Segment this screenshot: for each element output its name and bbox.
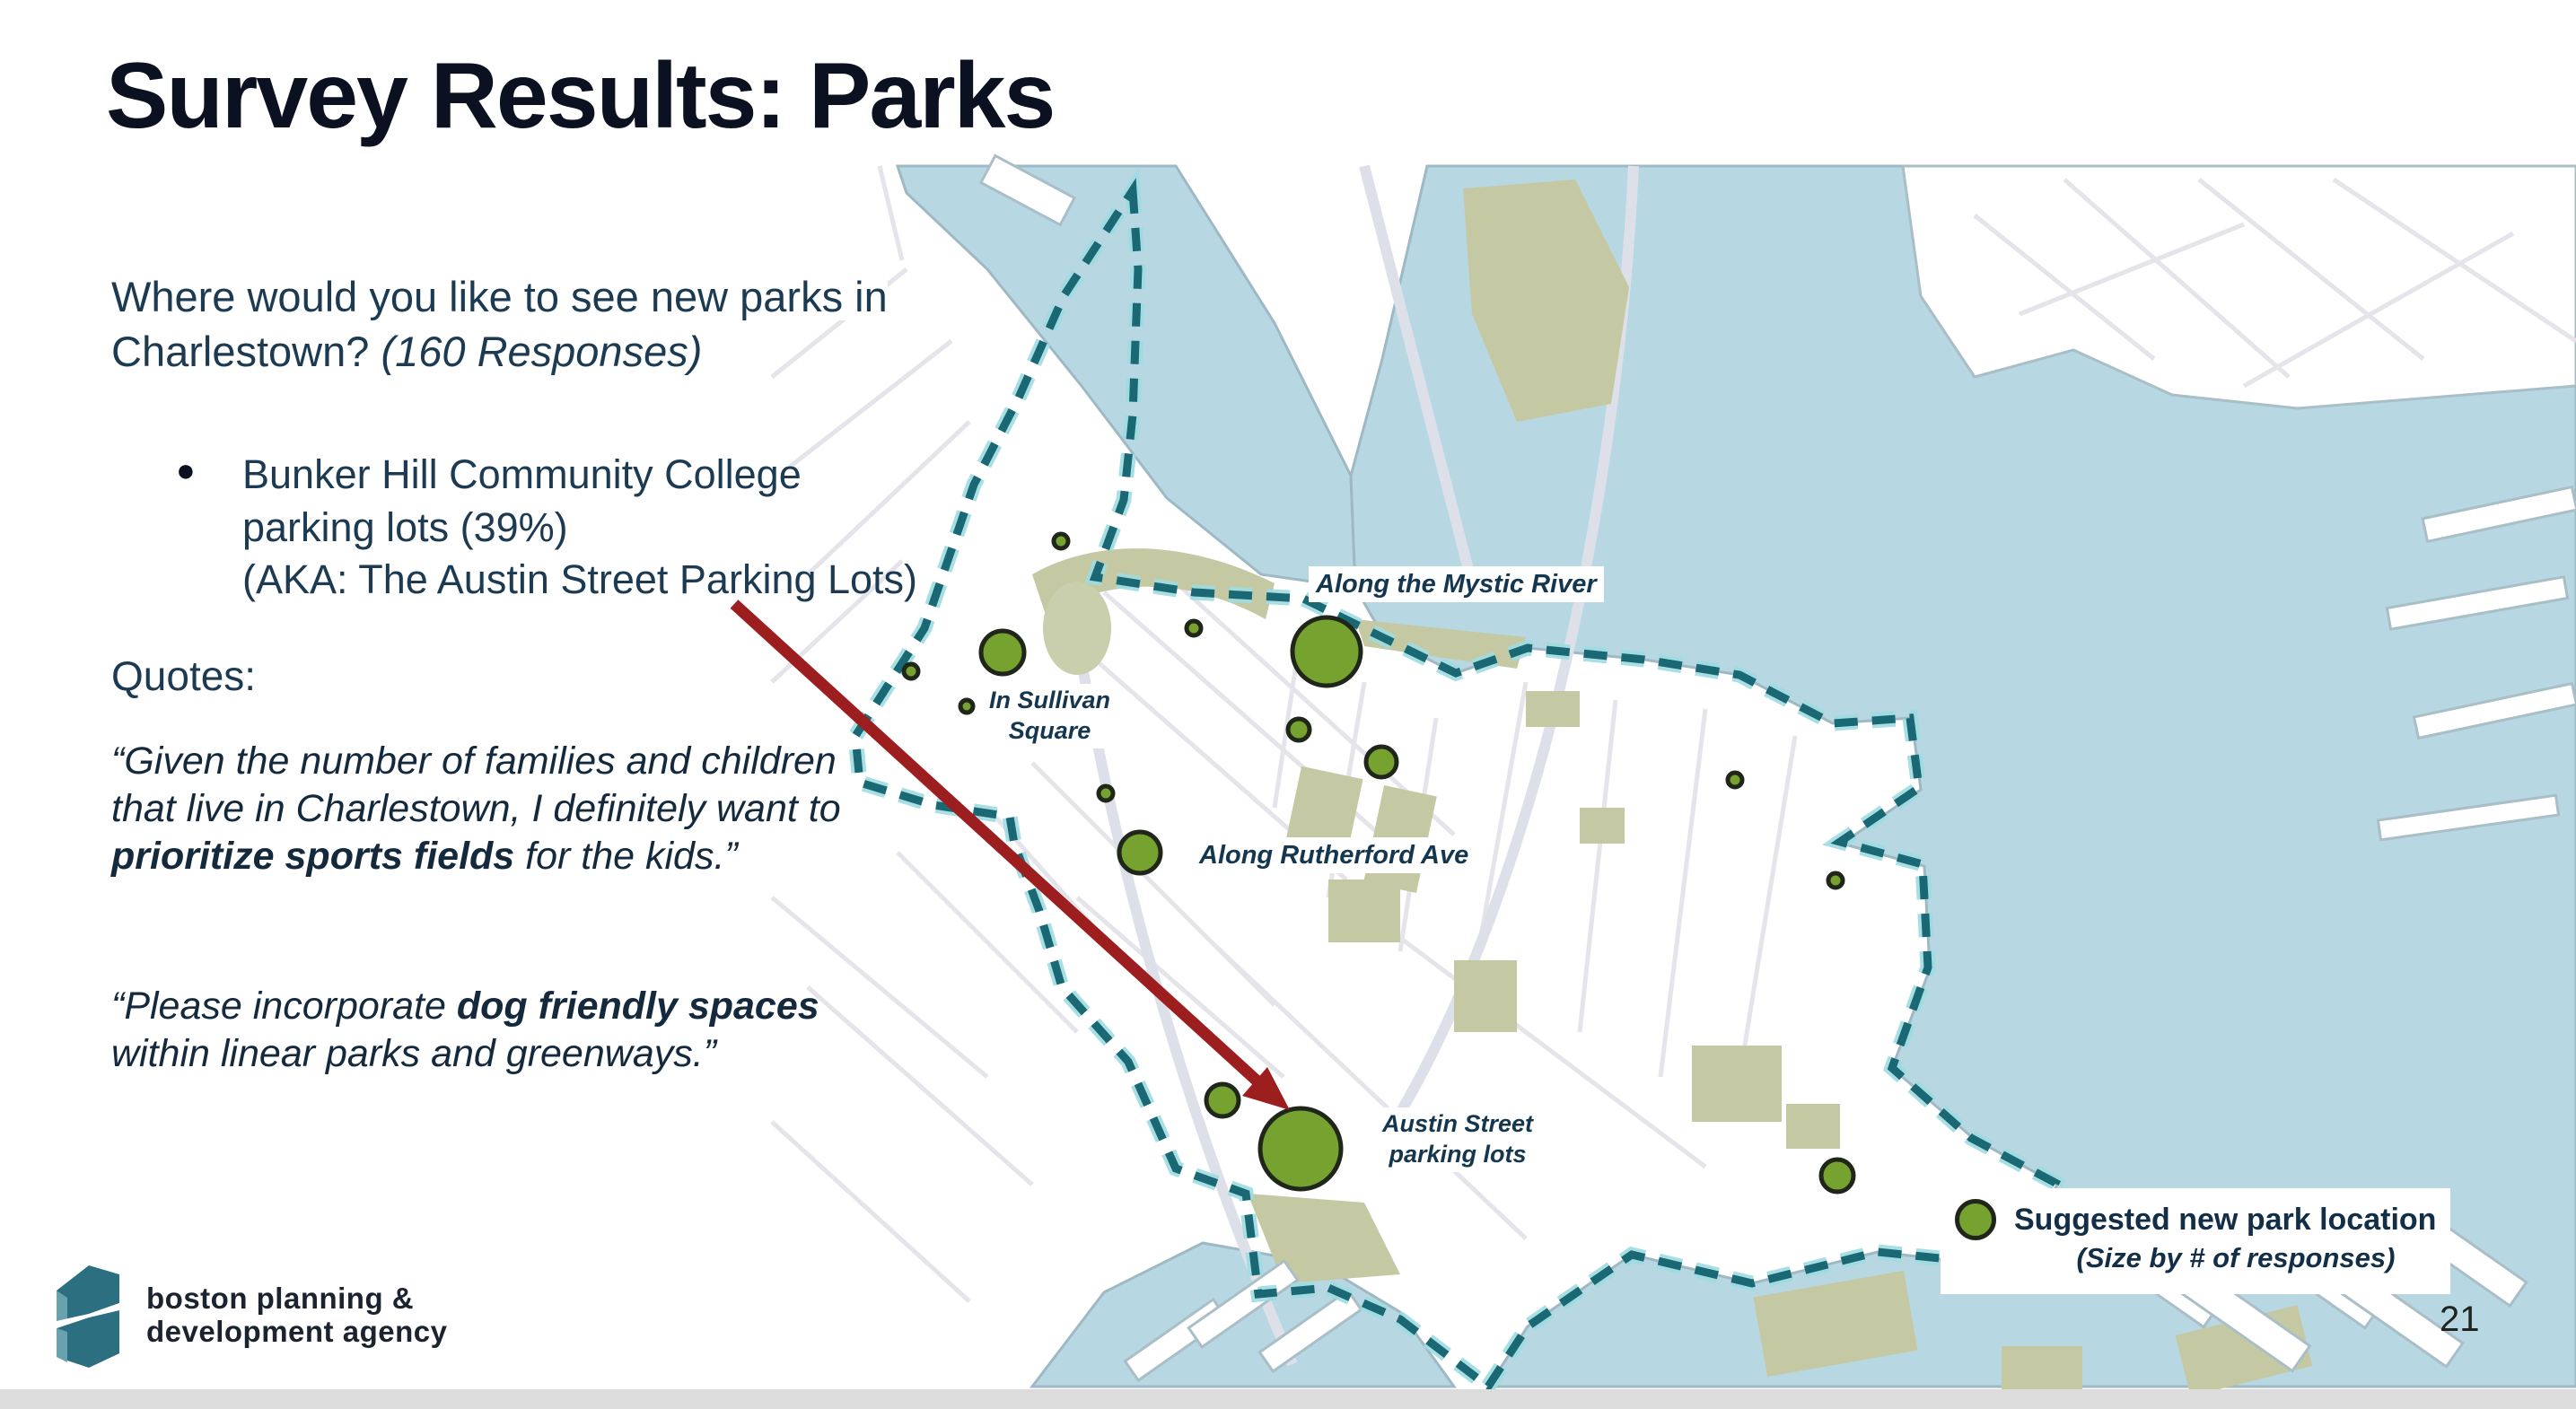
park-marker [1187,621,1201,635]
bpda-logo-text: boston planning & development agency [146,1282,447,1349]
park-marker [1260,1108,1341,1189]
park-marker [1206,1084,1239,1116]
slide-title: Survey Results: Parks [106,43,1054,150]
park-marker [1288,719,1310,740]
park-marker [1119,832,1161,873]
survey-question: Where would you like to see new parks in… [111,269,1152,379]
map-label-rutherford-ave: Along Rutherford Ave [1192,837,1476,873]
park-marker [981,631,1024,674]
park-marker [1292,617,1361,686]
park-marker [1099,786,1113,801]
bullet-item: Bunker Hill Community College parking lo… [242,449,942,554]
quote-2-post: within linear parks and greenways.” [111,1032,716,1075]
slide: Survey Results: Parks Where would you li… [0,0,2576,1409]
bpda-logo-line2: development agency [146,1316,447,1349]
quote-1-post: for the kids.” [514,835,738,878]
park-marker [1366,747,1397,777]
bpda-logo-icon [49,1258,125,1373]
quote-2-bold: dog friendly spaces [457,985,819,1028]
legend-subtitle: (Size by # of responses) [1941,1242,2450,1274]
park-marker [960,700,973,713]
park-marker [1728,773,1742,787]
quote-1-bold: prioritize sports fields [111,835,514,878]
quote-2-pre: “Please incorporate [111,985,457,1028]
quotes-heading: Quotes: [111,652,256,700]
survey-response-count: (160 Responses) [381,328,702,375]
park-marker [1054,534,1068,548]
bottom-strip [0,1389,2576,1409]
page-number: 21 [2440,1300,2480,1340]
map-label-sullivan-square: In Sullivan Square [982,684,1117,748]
quote-1-pre: “Given the number of families and childr… [111,740,841,830]
quote-2: “Please incorporate dog friendly spaces … [111,983,883,1078]
quote-1: “Given the number of families and childr… [111,738,883,880]
park-location-swatch-icon [1955,1199,1996,1240]
map-legend: Suggested new park location (Size by # o… [1941,1188,2450,1294]
park-marker [904,664,918,678]
map-label-austin-street: Austin Street parking lots [1375,1107,1540,1172]
bpda-logo-line1: boston planning & [146,1282,447,1316]
bullet-marker: ● [176,451,196,489]
map-label-mystic-river: Along the Mystic River [1309,566,1604,602]
bullet-item-note: (AKA: The Austin Street Parking Lots) [242,556,917,603]
park-marker [1828,873,1843,888]
bpda-logo: boston planning & development agency [49,1258,447,1373]
legend-title: Suggested new park location [2014,1203,2436,1238]
legend-row: Suggested new park location [1941,1188,2450,1240]
park-marker [1821,1160,1853,1192]
